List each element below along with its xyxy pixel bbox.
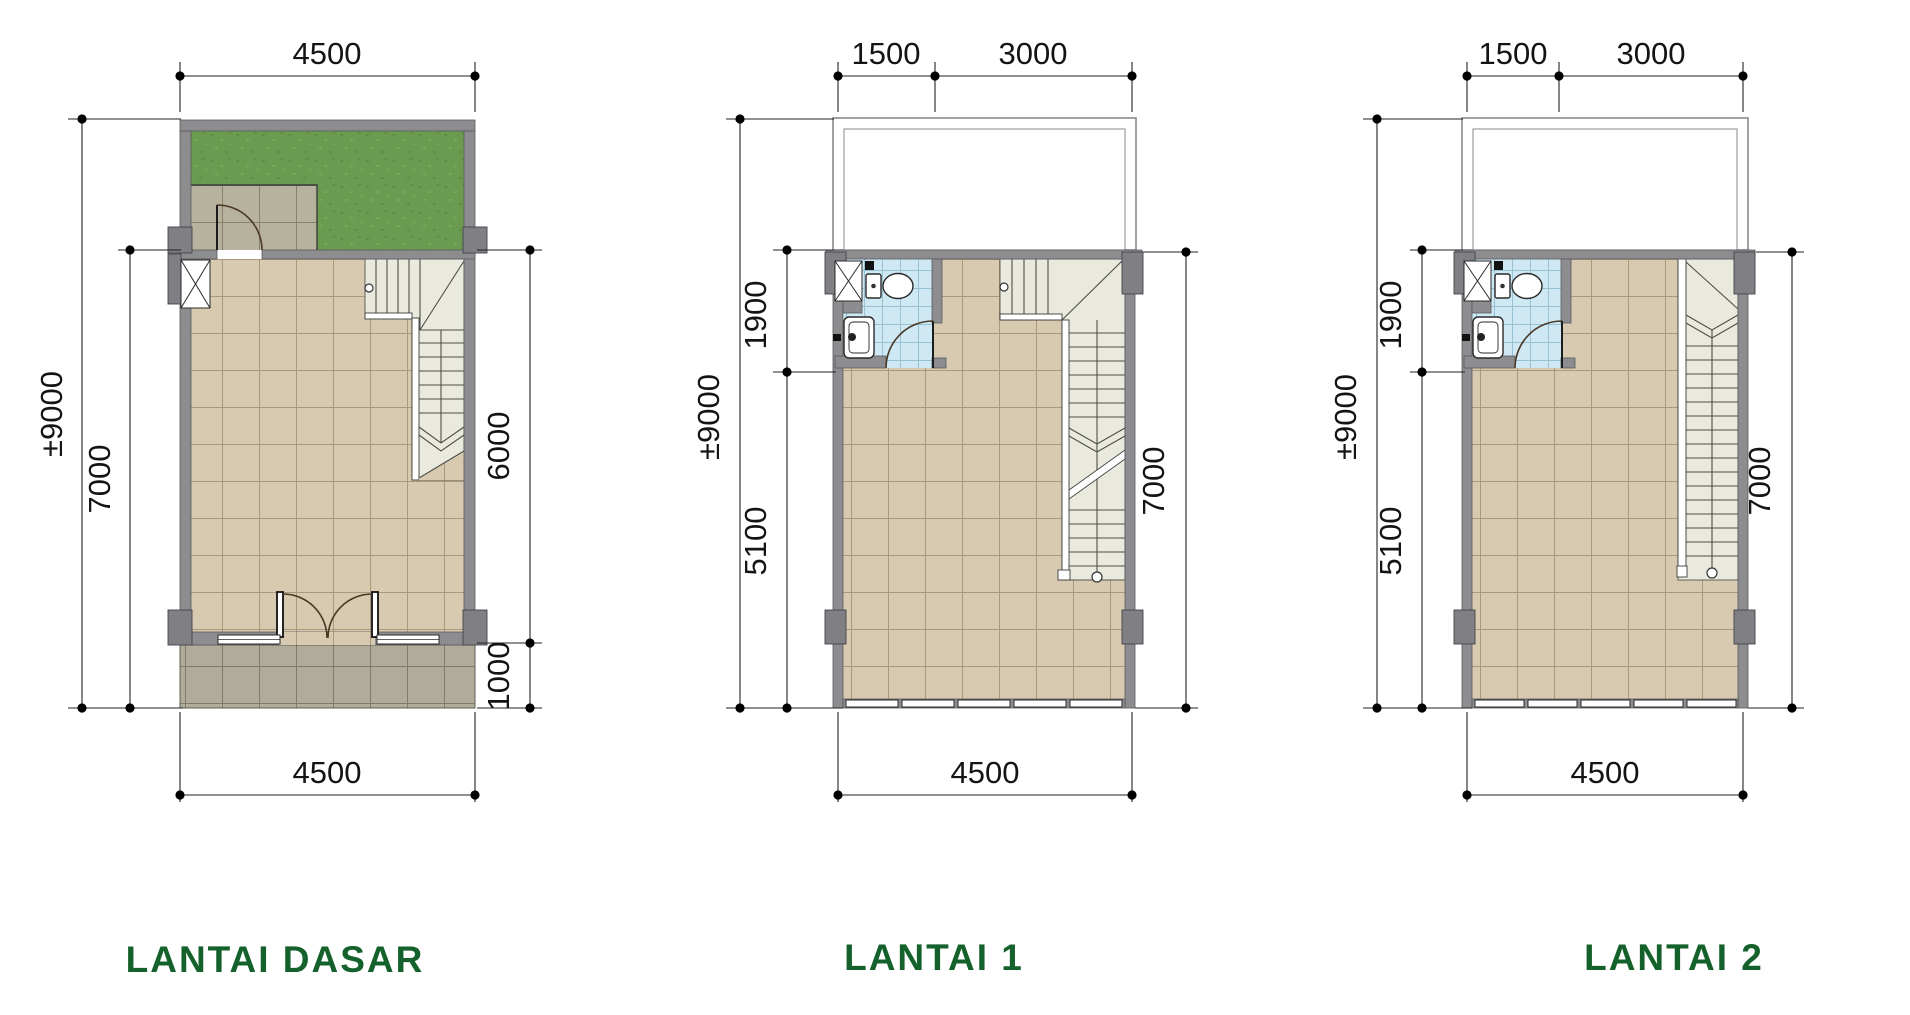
stair-newel xyxy=(1000,283,1008,291)
stair-newel xyxy=(365,284,373,292)
stair-rail xyxy=(1000,314,1062,320)
dim-right: 7000 xyxy=(1742,447,1777,516)
stair-newel xyxy=(1707,568,1717,578)
dim-right-upper: 6000 xyxy=(481,412,516,481)
dim-left-lower: 5100 xyxy=(1373,507,1408,576)
floor-label-lantai-2: LANTAI 2 xyxy=(1584,937,1764,978)
dim-top-right: 3000 xyxy=(999,36,1068,71)
dim-left-upper: 1900 xyxy=(738,281,773,350)
void-area xyxy=(1462,118,1748,250)
stair-rail xyxy=(365,313,412,319)
dim-right-lower: 1000 xyxy=(481,642,516,711)
bathroom-window xyxy=(835,261,862,301)
floor-plan-sheet: 4500 ±9000 7000 6000 1000 4500 LANTAI DA… xyxy=(0,0,1910,1015)
bathroom-window xyxy=(1464,261,1491,301)
stair-rail xyxy=(1678,259,1686,574)
window-band xyxy=(1475,700,1736,707)
dim-right: 7000 xyxy=(1136,447,1171,516)
dim-left-outer: ±9000 xyxy=(691,374,726,460)
terrace-area xyxy=(180,645,475,708)
left-wall-window xyxy=(181,260,210,308)
floor-plan-lantai-1: 1500 3000 ±9000 1900 5100 7000 4500 LAN xyxy=(691,36,1198,978)
floor-plan-lantai-dasar: 4500 ±9000 7000 6000 1000 4500 LANTAI DA… xyxy=(34,36,542,980)
void-area xyxy=(833,118,1136,250)
dim-bottom: 4500 xyxy=(1571,755,1640,790)
dim-bottom: 4500 xyxy=(951,755,1020,790)
dim-top-left: 1500 xyxy=(852,36,921,71)
stair-newel xyxy=(1092,572,1102,582)
floor-label-lantai-dasar: LANTAI DASAR xyxy=(126,939,425,980)
dim-left-outer: ±9000 xyxy=(34,371,69,457)
dim-bottom: 4500 xyxy=(293,755,362,790)
floor-plan-drawing: 4500 ±9000 7000 6000 1000 4500 LANTAI DA… xyxy=(0,0,1910,1015)
dim-left-lower: 5100 xyxy=(738,507,773,576)
staircase xyxy=(1677,259,1738,580)
dim-top-right: 3000 xyxy=(1617,36,1686,71)
floor-label-lantai-1: LANTAI 1 xyxy=(844,937,1024,978)
dim-left-outer: ±9000 xyxy=(1328,374,1363,460)
window-band xyxy=(846,700,1122,707)
porch-area xyxy=(191,185,317,250)
dim-left-upper: 1900 xyxy=(1373,281,1408,350)
dim-left-inner: 7000 xyxy=(82,445,117,514)
dim-top: 4500 xyxy=(293,36,362,71)
floor-plan-lantai-2: 1500 3000 ±9000 1900 5100 7000 4500 LAN xyxy=(1328,36,1804,978)
dim-top-left: 1500 xyxy=(1479,36,1548,71)
